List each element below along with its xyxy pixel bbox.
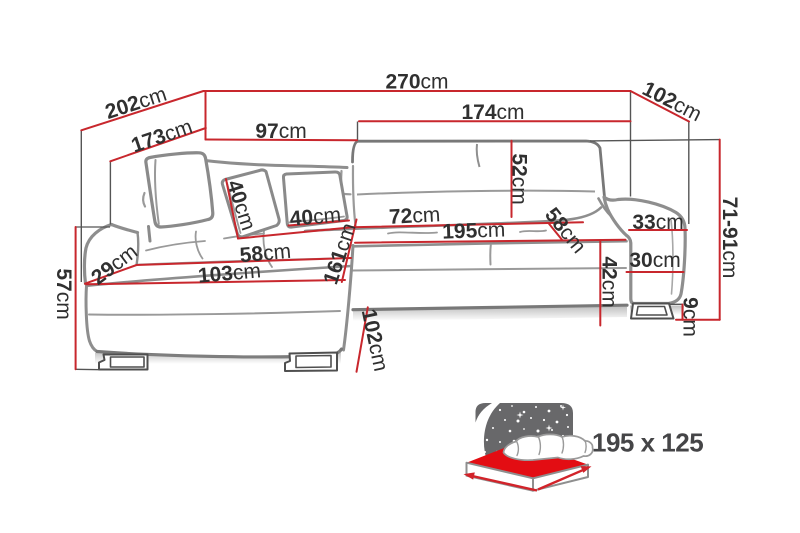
svg-text:97cm: 97cm <box>255 120 306 143</box>
svg-text:52cm: 52cm <box>508 153 531 204</box>
svg-text:103cm: 103cm <box>197 259 262 287</box>
svg-text:173cm: 173cm <box>128 115 195 157</box>
svg-text:57cm: 57cm <box>52 268 75 319</box>
svg-text:30cm: 30cm <box>629 249 680 272</box>
svg-text:195 x 125: 195 x 125 <box>592 428 703 458</box>
svg-text:102cm: 102cm <box>639 77 706 126</box>
svg-text:40cm: 40cm <box>289 203 342 230</box>
svg-text:42cm: 42cm <box>598 256 621 307</box>
svg-text:33cm: 33cm <box>632 211 683 234</box>
svg-text:72cm: 72cm <box>388 203 440 229</box>
svg-text:270cm: 270cm <box>385 70 448 93</box>
svg-text:202cm: 202cm <box>102 83 169 124</box>
svg-text:58cm: 58cm <box>540 203 590 257</box>
svg-text:195cm: 195cm <box>442 218 506 243</box>
svg-text:71-91cm: 71-91cm <box>718 197 741 279</box>
svg-text:174cm: 174cm <box>461 101 524 124</box>
svg-text:9cm: 9cm <box>679 297 702 337</box>
